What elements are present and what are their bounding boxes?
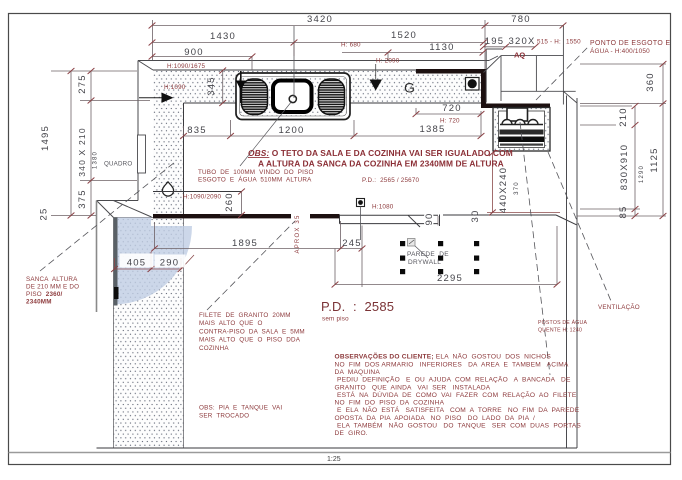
svg-text:515 - H:: 515 - H:: [537, 39, 561, 46]
svg-text:FILETE DE GRANITO 20MM: FILETE DE GRANITO 20MM: [199, 312, 291, 319]
svg-text:QUADRO: QUADRO: [104, 161, 132, 168]
svg-text:DE GIRO.: DE GIRO.: [335, 430, 368, 437]
svg-text:VENTILAÇÃO: VENTILAÇÃO: [598, 302, 640, 311]
svg-text:OPOSTA DA PIA APOIADA NO: OPOSTA DA PIA APOIADA NO PISO DO LADO DA…: [335, 415, 536, 422]
svg-text:MAIS ALTO QUE O: MAIS ALTO QUE O: [199, 320, 263, 327]
svg-text:720: 720: [442, 103, 461, 114]
svg-text:ESGOTO E ÁGUA 510MM ALTURA: ESGOTO E ÁGUA 510MM ALTURA: [198, 175, 312, 184]
svg-text:AQ: AQ: [514, 51, 525, 60]
svg-text:1495: 1495: [40, 125, 51, 151]
svg-text:MAIS ALTO QUE O PISO DDA: MAIS ALTO QUE O PISO DDA: [199, 337, 301, 344]
svg-text:DRYWALL: DRYWALL: [408, 259, 441, 266]
svg-text:TUBO DE 100MM VINDO DO PI: TUBO DE 100MM VINDO DO PISO: [198, 169, 314, 176]
svg-text:1:25: 1:25: [327, 456, 341, 463]
svg-text:780: 780: [511, 14, 530, 25]
svg-text:H:1090/2090: H:1090/2090: [183, 194, 222, 201]
svg-text:SANCA ALTURA: SANCA ALTURA: [26, 276, 78, 283]
svg-text:ELA TAMBÉM NÃO GOSTOU DO: ELA TAMBÉM NÃO GOSTOU DO TANQUE SER COM …: [337, 421, 581, 430]
svg-text:245: 245: [342, 238, 361, 249]
svg-text:H: 2090: H: 2090: [376, 58, 400, 65]
svg-text:APROX 35: APROX 35: [295, 215, 301, 254]
svg-text:ESTÁ NA DÚVIDA DE COMO VA: ESTÁ NA DÚVIDA DE COMO VAI FAZER COM REL…: [337, 390, 577, 399]
svg-text:PONTO DE ESGOTO E: PONTO DE ESGOTO E: [590, 40, 670, 47]
svg-text:GRANITO QUE AINDA VAI SE: GRANITO QUE AINDA VAI SER INSTALADA: [335, 384, 491, 391]
svg-text:340 X 210: 340 X 210: [77, 127, 87, 177]
svg-text:1130: 1130: [429, 42, 454, 53]
svg-text:P.D.: 2565 / 25670: P.D.: 2565 / 25670: [362, 177, 420, 184]
svg-text:COZINHA: COZINHA: [199, 345, 229, 352]
svg-text:1385: 1385: [420, 124, 446, 135]
svg-text:sem piso: sem piso: [322, 316, 349, 323]
svg-text:G: G: [404, 80, 415, 96]
svg-text:1430: 1430: [210, 31, 236, 42]
svg-text:25: 25: [39, 208, 50, 221]
svg-text:1380: 1380: [93, 151, 99, 169]
svg-text:30: 30: [470, 210, 481, 223]
svg-text:360: 360: [645, 72, 656, 91]
svg-text:830X910: 830X910: [619, 144, 630, 190]
svg-text:1200: 1200: [279, 125, 305, 136]
svg-text:320X: 320X: [509, 36, 536, 47]
svg-text:POSTOS DE ÁGUA: POSTOS DE ÁGUA: [538, 319, 587, 326]
svg-text:DE 210 MM E DO: DE 210 MM E DO: [26, 284, 79, 291]
svg-text:PEDIU DEFINIÇÃO E OU AJUD: PEDIU DEFINIÇÃO E OU AJUDA COM RELAÇÃO A…: [337, 375, 571, 384]
svg-text:440X240: 440X240: [498, 167, 509, 213]
svg-text:OBS: PIA E TANQUE VAI: OBS: PIA E TANQUE VAI: [199, 405, 282, 412]
svg-text:P.D. : 2585: P.D. : 2585: [321, 299, 394, 314]
svg-text:DA MAQUINA: DA MAQUINA: [335, 369, 381, 376]
svg-text:H:1090: H:1090: [164, 84, 186, 91]
svg-text:OBS: O TETO DA SALA E DA COZIN: OBS: O TETO DA SALA E DA COZINHA VAI SER…: [248, 148, 513, 158]
svg-text:195: 195: [485, 36, 504, 47]
svg-text:1895: 1895: [232, 238, 258, 249]
svg-text:90: 90: [424, 213, 435, 226]
svg-text:85: 85: [618, 206, 629, 219]
svg-text:2340MM: 2340MM: [26, 299, 52, 306]
svg-text:ÁGUA - H:400/1050: ÁGUA - H:400/1050: [590, 46, 650, 55]
svg-text:QUENTE H: 1240: QUENTE H: 1240: [538, 328, 582, 334]
svg-text:370: 370: [514, 181, 520, 195]
svg-text:1550: 1550: [566, 39, 581, 46]
svg-text:E ELA NÃO ESTÁ SATISFEITA: E ELA NÃO ESTÁ SATISFEITA COM A TORRE NO…: [337, 405, 580, 414]
svg-text:900: 900: [184, 47, 203, 58]
svg-text:210: 210: [618, 107, 629, 126]
svg-text:260: 260: [224, 192, 235, 211]
svg-text:275: 275: [77, 74, 88, 93]
svg-text:NO FIM DOS ARMARIO INFERIO: NO FIM DOS ARMARIO INFERIORES DA AREA E …: [335, 361, 569, 368]
svg-text:1520: 1520: [391, 30, 417, 41]
svg-text:375: 375: [77, 189, 88, 208]
svg-text:2295: 2295: [437, 273, 463, 284]
svg-text:H:1090/1675: H:1090/1675: [167, 63, 206, 70]
svg-text:H:1080: H:1080: [372, 204, 394, 211]
svg-text:SER TROCADO: SER TROCADO: [199, 413, 249, 420]
svg-text:PISO 2360/: PISO 2360/: [26, 291, 63, 298]
svg-text:H: 680: H: 680: [341, 42, 361, 49]
svg-text:290: 290: [160, 258, 179, 269]
svg-text:345: 345: [206, 76, 217, 95]
svg-text:OBSERVAÇÕES DO CLIENTE; ELA N: OBSERVAÇÕES DO CLIENTE; ELA NÃO GOSTOU D…: [335, 352, 552, 361]
svg-text:A ALTURA DA SANCA DA COZINHA E: A ALTURA DA SANCA DA COZINHA EM 2340MM D…: [258, 159, 504, 169]
svg-text:PAREDE DE: PAREDE DE: [407, 251, 449, 258]
svg-text:3420: 3420: [307, 14, 333, 25]
svg-text:CONTRA-PISO DA SALA E 5MM: CONTRA-PISO DA SALA E 5MM: [199, 328, 305, 335]
svg-text:405: 405: [127, 258, 146, 269]
svg-text:1290: 1290: [639, 165, 645, 183]
svg-text:H: 720: H: 720: [440, 118, 460, 125]
svg-text:NO FIM DO PISO DA COZINHA: NO FIM DO PISO DA COZINHA: [335, 400, 445, 407]
svg-text:1125: 1125: [649, 147, 660, 172]
svg-text:835: 835: [187, 125, 206, 136]
